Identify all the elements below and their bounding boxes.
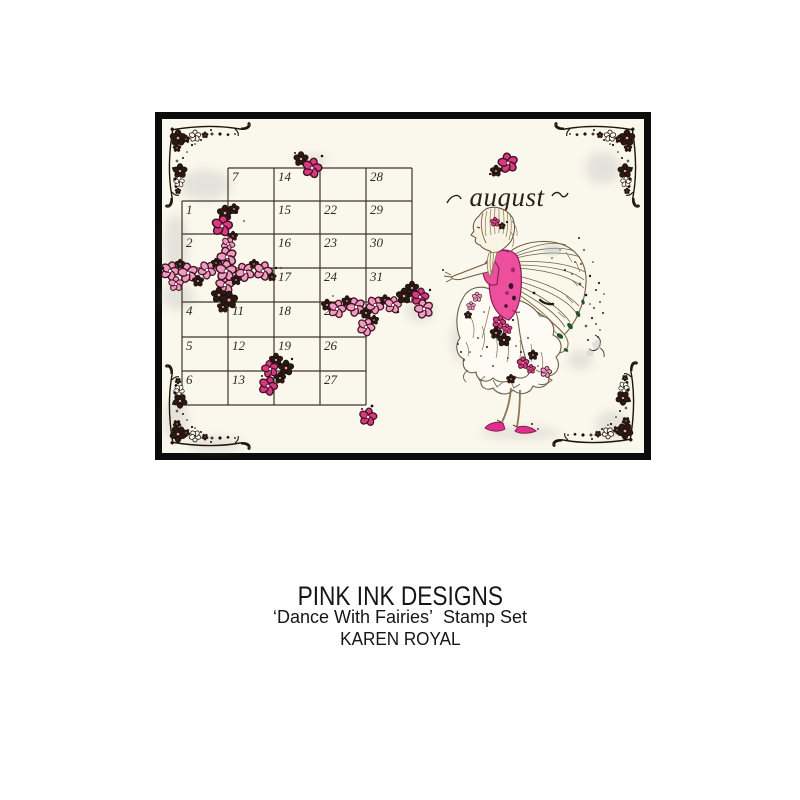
svg-text:27: 27: [324, 372, 338, 387]
svg-text:26: 26: [324, 338, 338, 353]
svg-text:4: 4: [186, 303, 193, 318]
svg-text:30: 30: [369, 235, 384, 250]
svg-text:2: 2: [186, 235, 193, 250]
svg-text:24: 24: [324, 269, 338, 284]
svg-text:16: 16: [278, 235, 292, 250]
svg-text:7: 7: [232, 169, 239, 184]
svg-text:22: 22: [324, 202, 338, 217]
svg-text:5: 5: [186, 338, 193, 353]
svg-text:12: 12: [232, 338, 246, 353]
svg-text:23: 23: [324, 235, 338, 250]
svg-text:6: 6: [186, 372, 193, 387]
svg-text:18: 18: [278, 303, 292, 318]
svg-text:19: 19: [278, 338, 292, 353]
svg-text:28: 28: [370, 169, 384, 184]
svg-text:29: 29: [370, 202, 384, 217]
svg-text:13: 13: [232, 372, 246, 387]
svg-text:august: august: [469, 182, 545, 212]
svg-text:15: 15: [278, 202, 292, 217]
svg-text:14: 14: [278, 169, 292, 184]
svg-text:31: 31: [369, 269, 383, 284]
svg-text:1: 1: [186, 202, 193, 217]
svg-text:17: 17: [278, 269, 292, 284]
